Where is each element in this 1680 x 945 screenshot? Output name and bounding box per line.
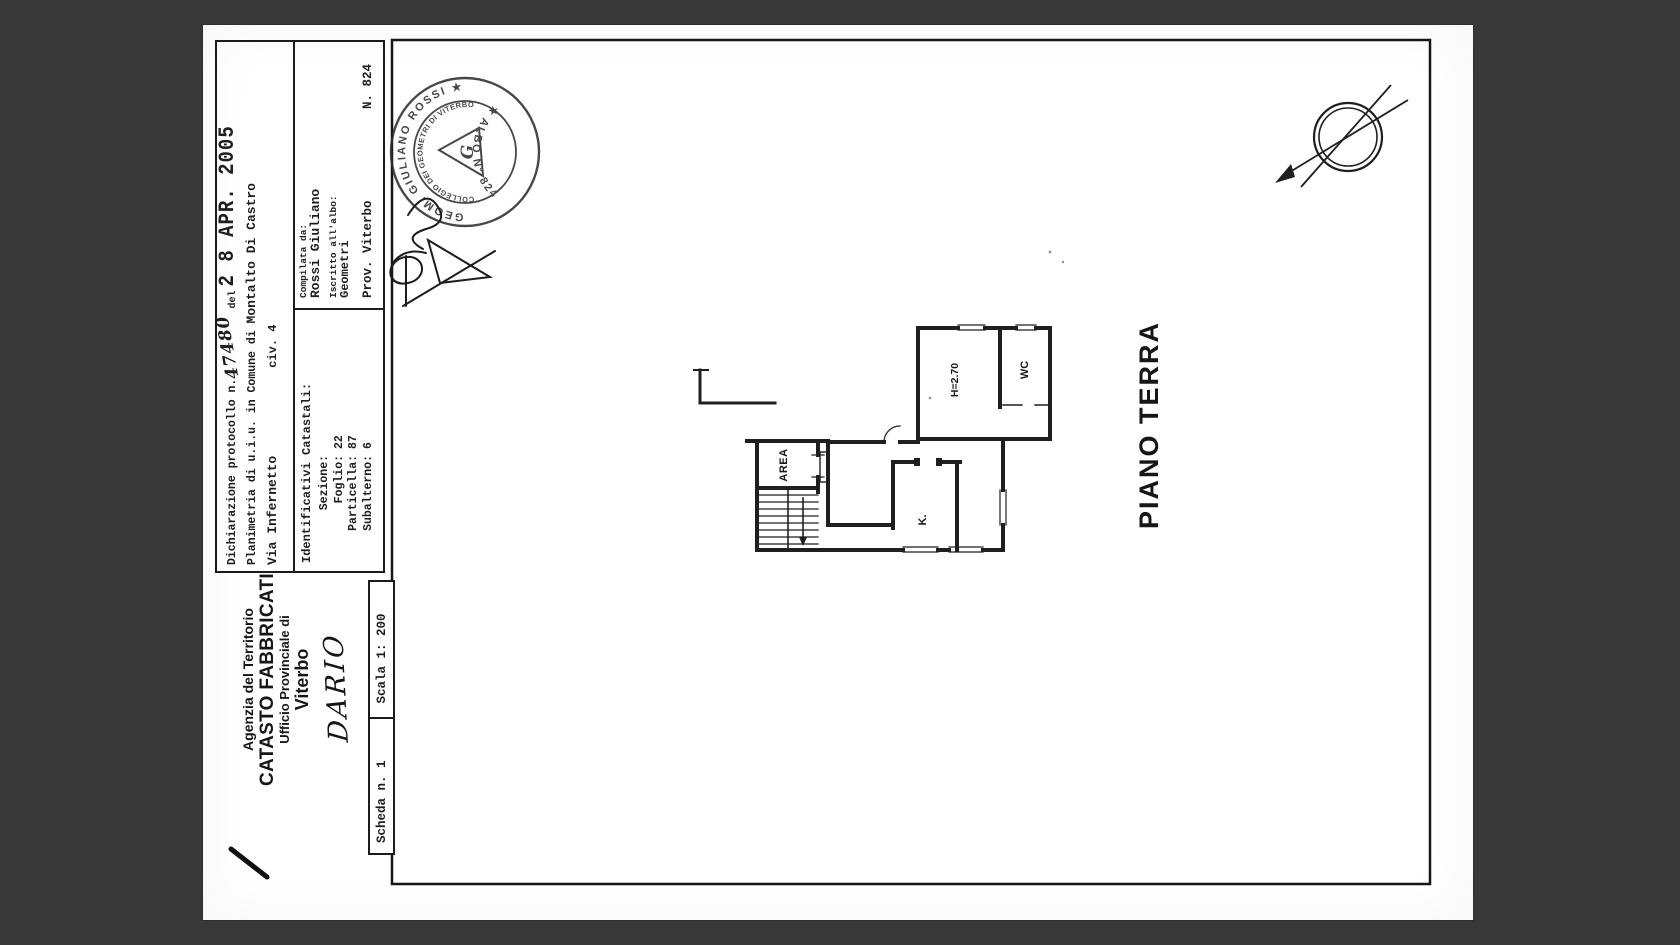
identifier-label: Particella: bbox=[347, 455, 362, 563]
address-line: Via Infernettociv. 4 bbox=[265, 46, 280, 565]
identifier-row-sezione: Sezione: bbox=[318, 316, 333, 563]
handwritten-name: DARIO bbox=[318, 631, 355, 743]
cadastral-identifiers-cell: Identificativi Catastali: Sezione: Fogli… bbox=[295, 308, 383, 571]
province-row: Prov. Viterbo N. 824 bbox=[361, 50, 375, 298]
identifier-row-subalterno: Subalterno: 6 bbox=[362, 316, 377, 563]
planimetria-line: Planimetria di u.i.u. in Comune di Monta… bbox=[244, 46, 259, 565]
compiler-name: Rossi Giuliano bbox=[309, 50, 323, 298]
comune-name: Montalto Di Castro bbox=[244, 183, 259, 323]
identifier-row-foglio: Foglio: 22 bbox=[333, 316, 348, 563]
agency-heading: Agenzia del Territorio CATASTO FABBRICAT… bbox=[241, 557, 313, 802]
rotated-document-content: Agenzia del Territorio CATASTO FABBRICAT… bbox=[203, 25, 1473, 920]
date-stamp: 2 8 APR. 2005 bbox=[214, 125, 239, 286]
compiler-cell: Compilata da: Rossi Giuliano Iscritto al… bbox=[295, 42, 383, 308]
agency-line3: Ufficio Provinciale di bbox=[278, 557, 293, 802]
declaration-prefix: Dichiarazione protocollo n. bbox=[226, 379, 239, 565]
albo-number: N. 824 bbox=[361, 64, 375, 109]
title-block-table: Dichiarazione protocollo n.47480del2 8 A… bbox=[215, 40, 385, 573]
civic-number: civ. 4 bbox=[266, 325, 280, 368]
scanned-cadastral-document: AREA K. WC H=2.70 PIANO TERRA bbox=[0, 0, 1680, 945]
sheet-info-strip: Scheda n. 1 Scala 1: 200 bbox=[368, 580, 395, 855]
street-name: Via Infernetto bbox=[265, 456, 280, 565]
sheet-number: Scheda n. 1 bbox=[370, 718, 393, 854]
albo-name: Geometri bbox=[339, 50, 352, 298]
province-label: Prov. Viterbo bbox=[361, 200, 375, 298]
del-label: del bbox=[228, 290, 239, 308]
declaration-row: Dichiarazione protocollo n.47480del2 8 A… bbox=[217, 42, 295, 571]
pen-tick-mark bbox=[223, 842, 271, 882]
sheet-scale: Scala 1: 200 bbox=[375, 582, 389, 718]
identifier-label: Sezione: bbox=[318, 455, 333, 563]
paper-sheet: AREA K. WC H=2.70 PIANO TERRA bbox=[203, 25, 1473, 920]
identifier-value: 87 bbox=[347, 435, 362, 449]
agency-line4: Viterbo bbox=[292, 557, 312, 802]
title-block-second-row: Identificativi Catastali: Sezione: Fogli… bbox=[295, 42, 383, 571]
identifier-label: Foglio: bbox=[333, 455, 348, 563]
declaration-line: Dichiarazione protocollo n.47480del2 8 A… bbox=[219, 46, 241, 565]
agency-line2: CATASTO FABBRICATI bbox=[257, 557, 278, 802]
identifier-label: Subalterno: bbox=[362, 455, 377, 563]
identifier-row-particella: Particella: 87 bbox=[347, 316, 362, 563]
identifier-value: 22 bbox=[333, 435, 348, 449]
identifier-value: 6 bbox=[362, 442, 377, 449]
agency-line1: Agenzia del Territorio bbox=[241, 557, 257, 802]
identifiers-title: Identificativi Catastali: bbox=[300, 316, 314, 563]
planimetria-prefix: Planimetria di u.i.u. in Comune di bbox=[246, 330, 259, 565]
protocol-number-handwritten: 47480 bbox=[213, 314, 244, 381]
